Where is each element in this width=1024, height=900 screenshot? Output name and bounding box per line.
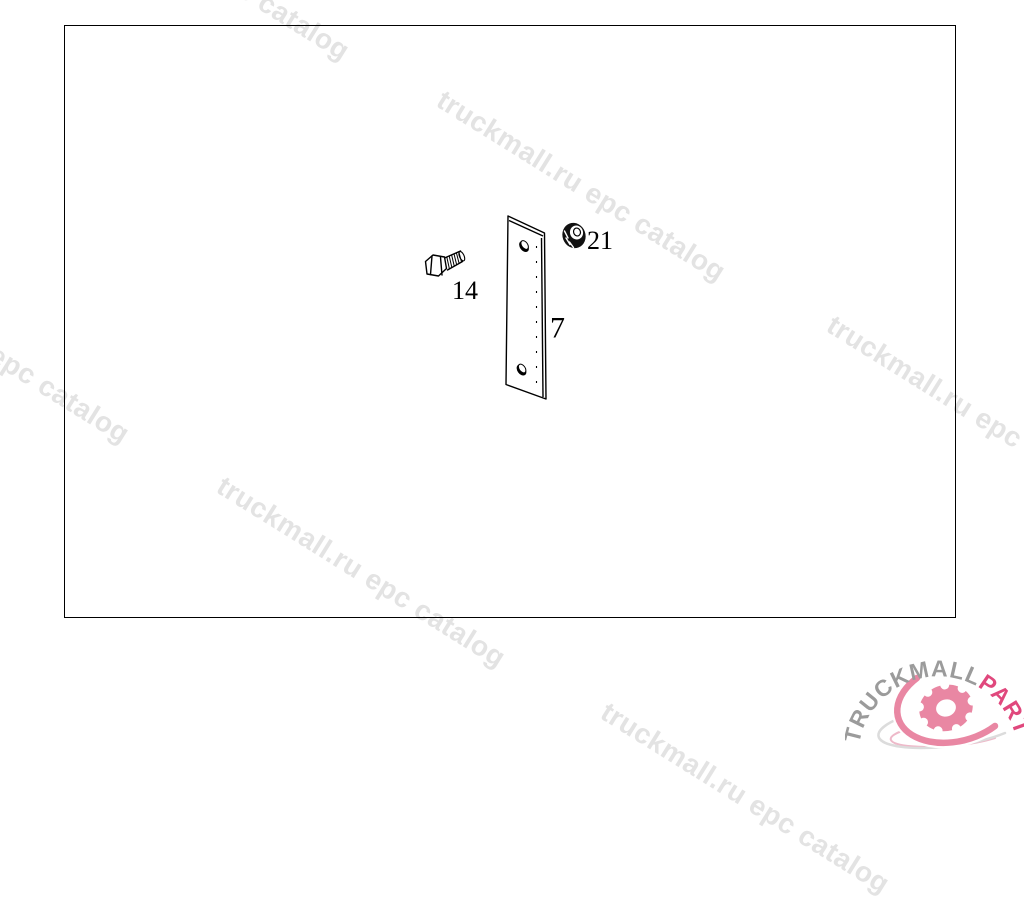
part-label-14[interactable]: 14 [452,276,478,305]
parts-drawing: 7 14 21 [400,200,650,420]
truckmall-parts-logo: TRUCKMALLPARTS [845,638,1024,750]
hex-bolt-drawing [426,251,466,276]
part-label-21[interactable]: 21 [587,226,613,255]
plate-drawing [506,216,546,399]
parts-catalog-page: { "watermark": { "text": "truckmall.ru e… [0,0,1024,750]
hex-nut-drawing [559,220,589,252]
part-label-7[interactable]: 7 [550,312,565,345]
